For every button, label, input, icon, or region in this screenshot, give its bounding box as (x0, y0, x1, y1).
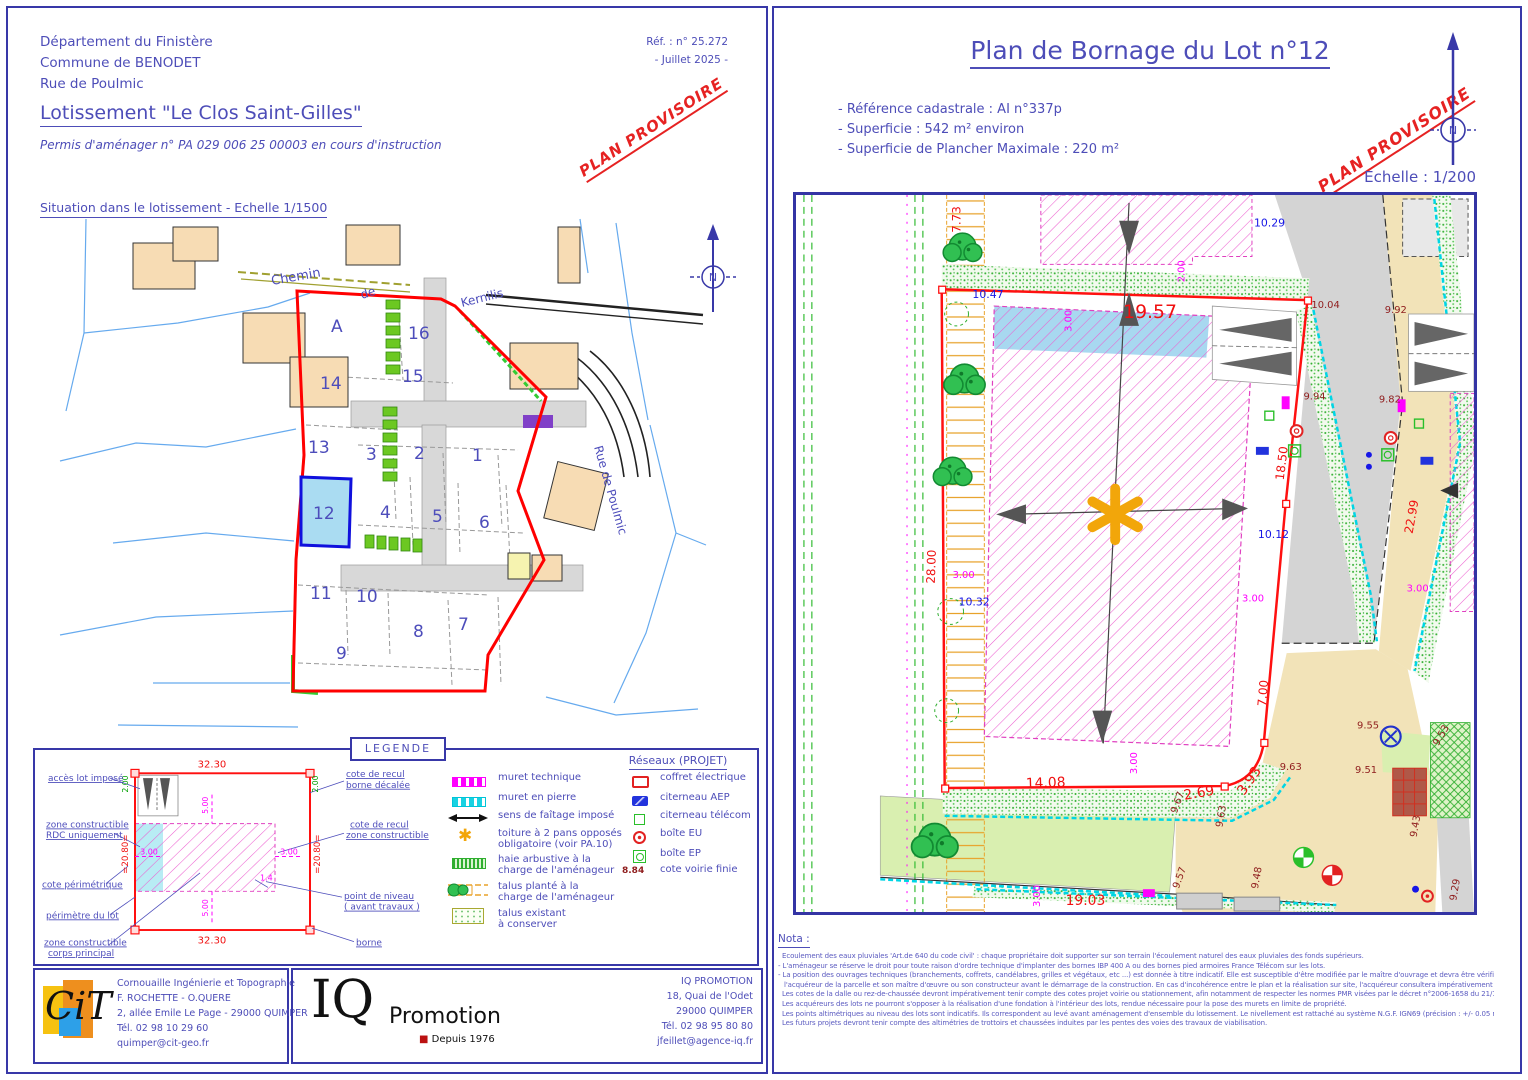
street-line: Rue de Poulmic (40, 74, 213, 95)
muret-technique-label: muret technique (498, 772, 581, 783)
lot-number: 16 (408, 324, 430, 344)
dim-label: 9.55 (1357, 721, 1379, 732)
dim-label: 10.04 (1311, 300, 1339, 311)
dim-label: 1.4 (260, 874, 273, 883)
iq-logo-tagline: ■ Depuis 1976 (419, 1034, 495, 1045)
iq-line: Tél. 02 98 95 80 80 (657, 1019, 753, 1034)
roof-rule-label: toiture à 2 pans opposés (498, 828, 622, 839)
constructible-zone-example (135, 824, 275, 892)
muret-pierre-swatch (452, 797, 486, 807)
dim-label: 3.00 (1407, 584, 1429, 595)
dim-label: 19.57 (1123, 302, 1177, 323)
cadastral-ref-line: - Référence cadastrale : AI n°337p (838, 100, 1119, 120)
nota-block: Nota : Ecoulement des eaux pluviales 'Ar… (778, 933, 1494, 1029)
nota-line: l'acquéreur de la parcelle et son maître… (778, 981, 1494, 991)
dim-label: 28.00 (924, 549, 939, 583)
ridge-direction-icon (448, 812, 488, 824)
plan-title: Plan de Bornage du Lot n°12 (900, 36, 1400, 69)
dim-label: 14.08 (1026, 775, 1066, 792)
lot-number: 1 (472, 446, 483, 466)
boite-eu-icon (633, 831, 646, 844)
dim-label: 32.30 (198, 760, 227, 771)
cit-line: F. ROCHETTE - O.QUERE (117, 991, 308, 1006)
ridge-direction-label: sens de faîtage imposé (498, 810, 614, 821)
north-arrow-main: N (1428, 30, 1478, 170)
dim-label: 5.00 (201, 899, 210, 916)
dim-label: 7.73 (950, 206, 964, 232)
citerneau-aep-icon (632, 796, 648, 806)
networks-title: Réseaux (PROJET) (598, 754, 758, 770)
dim-label: cote de recul (346, 770, 405, 780)
coffret-electrique-label: coffret électrique (660, 772, 746, 783)
citerneau-aep-label: citerneau AEP (660, 792, 730, 803)
street-label: de (359, 284, 378, 302)
lot-number: 13 (308, 438, 330, 458)
lot-number: 15 (402, 367, 424, 387)
nota-line: - La position des ouvrages techniques (b… (778, 971, 1494, 981)
nota-line: Ecoulement des eaux pluviales 'Art.de 64… (778, 952, 1494, 962)
commune-line: Commune de BENODET (40, 53, 213, 74)
ref-number: Réf. : n° 25.272 (600, 34, 728, 52)
cit-line: 2, allée Emile Le Page - 29000 QUIMPER (117, 1006, 308, 1021)
muret-pierre-label: muret en pierre (498, 792, 576, 803)
dim-label: accès lot imposé (48, 773, 124, 784)
legend-diagram: 32.3032.302.002.005.005.00=20.80==20.80=… (40, 752, 440, 960)
cit-line: quimper@cit-geo.fr (117, 1036, 308, 1051)
boite-eu-label: boîte EU (660, 828, 702, 839)
lot-number: 8 (413, 622, 424, 642)
situation-map: A16141513321124561110987 ChemindeKernili… (58, 215, 713, 735)
dim-label: corps principal (48, 949, 114, 959)
nota-title: Nota : (778, 933, 1494, 948)
haie-label: haie arbustive à la (498, 854, 591, 865)
dim-label: 10.12 (1258, 528, 1289, 541)
ref-block: Réf. : n° 25.272 - Juillet 2025 - (600, 34, 728, 70)
nota-line: Les cotes de la dalle ou rez-de-chaussée… (778, 990, 1494, 1000)
dim-label: 3.00 (1129, 752, 1140, 774)
area-line: - Superficie : 542 m² environ (838, 120, 1119, 140)
lot-number: 4 (380, 503, 391, 523)
permit-line: Permis d'aménager n° PA 029 006 25 00003… (40, 138, 442, 152)
dim-label: 5.00 (201, 797, 210, 814)
dim-label: 9.51 (1355, 765, 1377, 776)
lot-number: 10 (356, 587, 378, 607)
dim-label: 10.29 (1254, 217, 1285, 230)
ref-date: - Juillet 2025 - (600, 52, 728, 70)
iq-line: 29000 QUIMPER (657, 1004, 753, 1019)
talus-plante-label: talus planté à la (498, 881, 579, 892)
haie-swatch (452, 858, 486, 869)
dim-label: zone constructible (346, 831, 429, 841)
citerneau-telecom-label: citerneau télécom (660, 810, 751, 821)
dim-label: zone constructible (46, 821, 129, 831)
dim-label: ( avant travaux ) (344, 903, 420, 913)
roof-rule-label2: obligatoire (voir PA.10) (498, 839, 612, 850)
talus-existant-label2: à conserver (498, 919, 557, 930)
cit-logo-text: CiT (45, 984, 112, 1028)
lot-number: 14 (320, 374, 342, 394)
dim-label: 3.00 (953, 570, 975, 581)
lot-number: 3 (366, 445, 377, 465)
dim-label: zone constructible (44, 939, 127, 949)
boite-ep-icon (633, 850, 646, 863)
dim-label: 9.94 (1304, 391, 1326, 402)
nota-line: Les acquéreurs des lots ne pourront s'op… (778, 1000, 1494, 1010)
cit-box: CiT Cornouaille Ingénierie et Topographi… (33, 968, 289, 1064)
dim-label: point de niveau (344, 892, 414, 902)
dim-label: 9.82 (1379, 394, 1401, 405)
floor-area-line: - Superficie de Plancher Maximale : 220 … (838, 140, 1119, 160)
coffret-electrique-icon (632, 776, 649, 788)
dim-label: RDC uniquement (46, 831, 123, 841)
cit-logo: CiT (43, 978, 111, 1052)
dim-label: 10.32 (959, 596, 990, 609)
lot-number: A (331, 317, 343, 337)
iq-red-square-icon: ■ (419, 1034, 428, 1045)
dim-label: borne décalée (346, 780, 410, 791)
iq-line: 18, Quai de l'Odet (657, 989, 753, 1004)
north-letter: N (1449, 124, 1457, 137)
header-left: Département du Finistère Commune de BENO… (40, 32, 213, 95)
nota-line: Les futurs projets devront tenir compte … (778, 1019, 1494, 1029)
street-label: Chemin (270, 266, 322, 289)
citerneau-telecom-icon (634, 814, 645, 825)
lot-number-highlight: 12 (313, 504, 335, 524)
lot-number: 11 (310, 584, 332, 604)
iq-line: IQ PROMOTION (657, 974, 753, 989)
dim-label: 2.00 (1177, 260, 1188, 282)
boite-ep-label: boîte EP (660, 848, 701, 859)
nota-line: Les points altimétriques au niveau des l… (778, 1010, 1494, 1020)
dim-label: 10.47 (972, 288, 1003, 301)
muret-technique-swatch (452, 777, 486, 787)
street-label: Kernilis (459, 286, 504, 310)
cit-address: Cornouaille Ingénierie et Topographie F.… (117, 976, 308, 1051)
iq-logo-sub: Promotion (389, 1004, 501, 1029)
scale-label: Echelle : 1/200 (1330, 168, 1476, 186)
dim-label: 3.00 (1242, 594, 1264, 605)
cit-line: Tél. 02 98 10 29 60 (117, 1021, 308, 1036)
dim-label: 9.92 (1385, 305, 1407, 316)
dim-label: 3.00 (280, 848, 298, 857)
lot-number: 5 (432, 507, 443, 527)
dim-label: 3.00 (140, 848, 158, 857)
talus-existant-swatch (452, 908, 484, 924)
dim-label: 7.00 (1255, 679, 1271, 707)
cit-line: Cornouaille Ingénierie et Topographie (117, 976, 308, 991)
iq-address: IQ PROMOTION 18, Quai de l'Odet 29000 QU… (657, 974, 753, 1049)
dim-label: cote périmétrique (42, 880, 123, 891)
dim-label: =20.80= (313, 834, 323, 873)
roof-star-icon: ✱ (458, 826, 472, 846)
bornage-plan: 7.7310.292.0010.4719.573.0010.049.929.94… (796, 195, 1474, 912)
dim-label: cote de recul (350, 821, 409, 831)
lot-number: 2 (414, 444, 425, 464)
iq-box: IQ Promotion ■ Depuis 1976 IQ PROMOTION … (291, 968, 763, 1064)
talus-existant-label: talus existant (498, 908, 566, 919)
departement-line: Département du Finistère (40, 32, 213, 53)
legend-title-tab: LEGENDE (350, 737, 446, 761)
dim-label: borne (356, 939, 382, 949)
plan-info: - Référence cadastrale : AI n°337p - Sup… (838, 100, 1119, 160)
nota-line: - L'aménageur se réserve le droit pour t… (778, 962, 1494, 972)
dim-label: 2.00 (311, 775, 320, 792)
iq-line: jfeillet@agence-iq.fr (657, 1034, 753, 1049)
dim-label: 3.00 (1064, 310, 1075, 332)
dim-label: 3.00 (1032, 885, 1043, 907)
dim-label: 32.30 (198, 936, 227, 947)
iq-logo-text: IQ (311, 974, 374, 1026)
haie-label2: charge de l'aménageur (498, 865, 614, 876)
dim-label: 19.03 (1066, 893, 1106, 909)
lotissement-title: Lotissement "Le Clos Saint-Gilles" (40, 102, 362, 127)
cote-voirie-value: 8.84 (622, 866, 644, 876)
lot-number: 6 (479, 513, 490, 533)
cote-voirie-label: cote voirie finie (660, 864, 737, 875)
talus-plante-icon (446, 880, 490, 900)
dim-label: 9.63 (1280, 762, 1302, 773)
dim-label: périmètre du lot (46, 911, 119, 922)
bornage-sheet: Département du Finistère Commune de BENO… (0, 0, 1528, 1080)
talus-plante-label2: charge de l'aménageur (498, 892, 614, 903)
lot-number: 9 (336, 644, 347, 664)
lot-number: 7 (458, 615, 469, 635)
